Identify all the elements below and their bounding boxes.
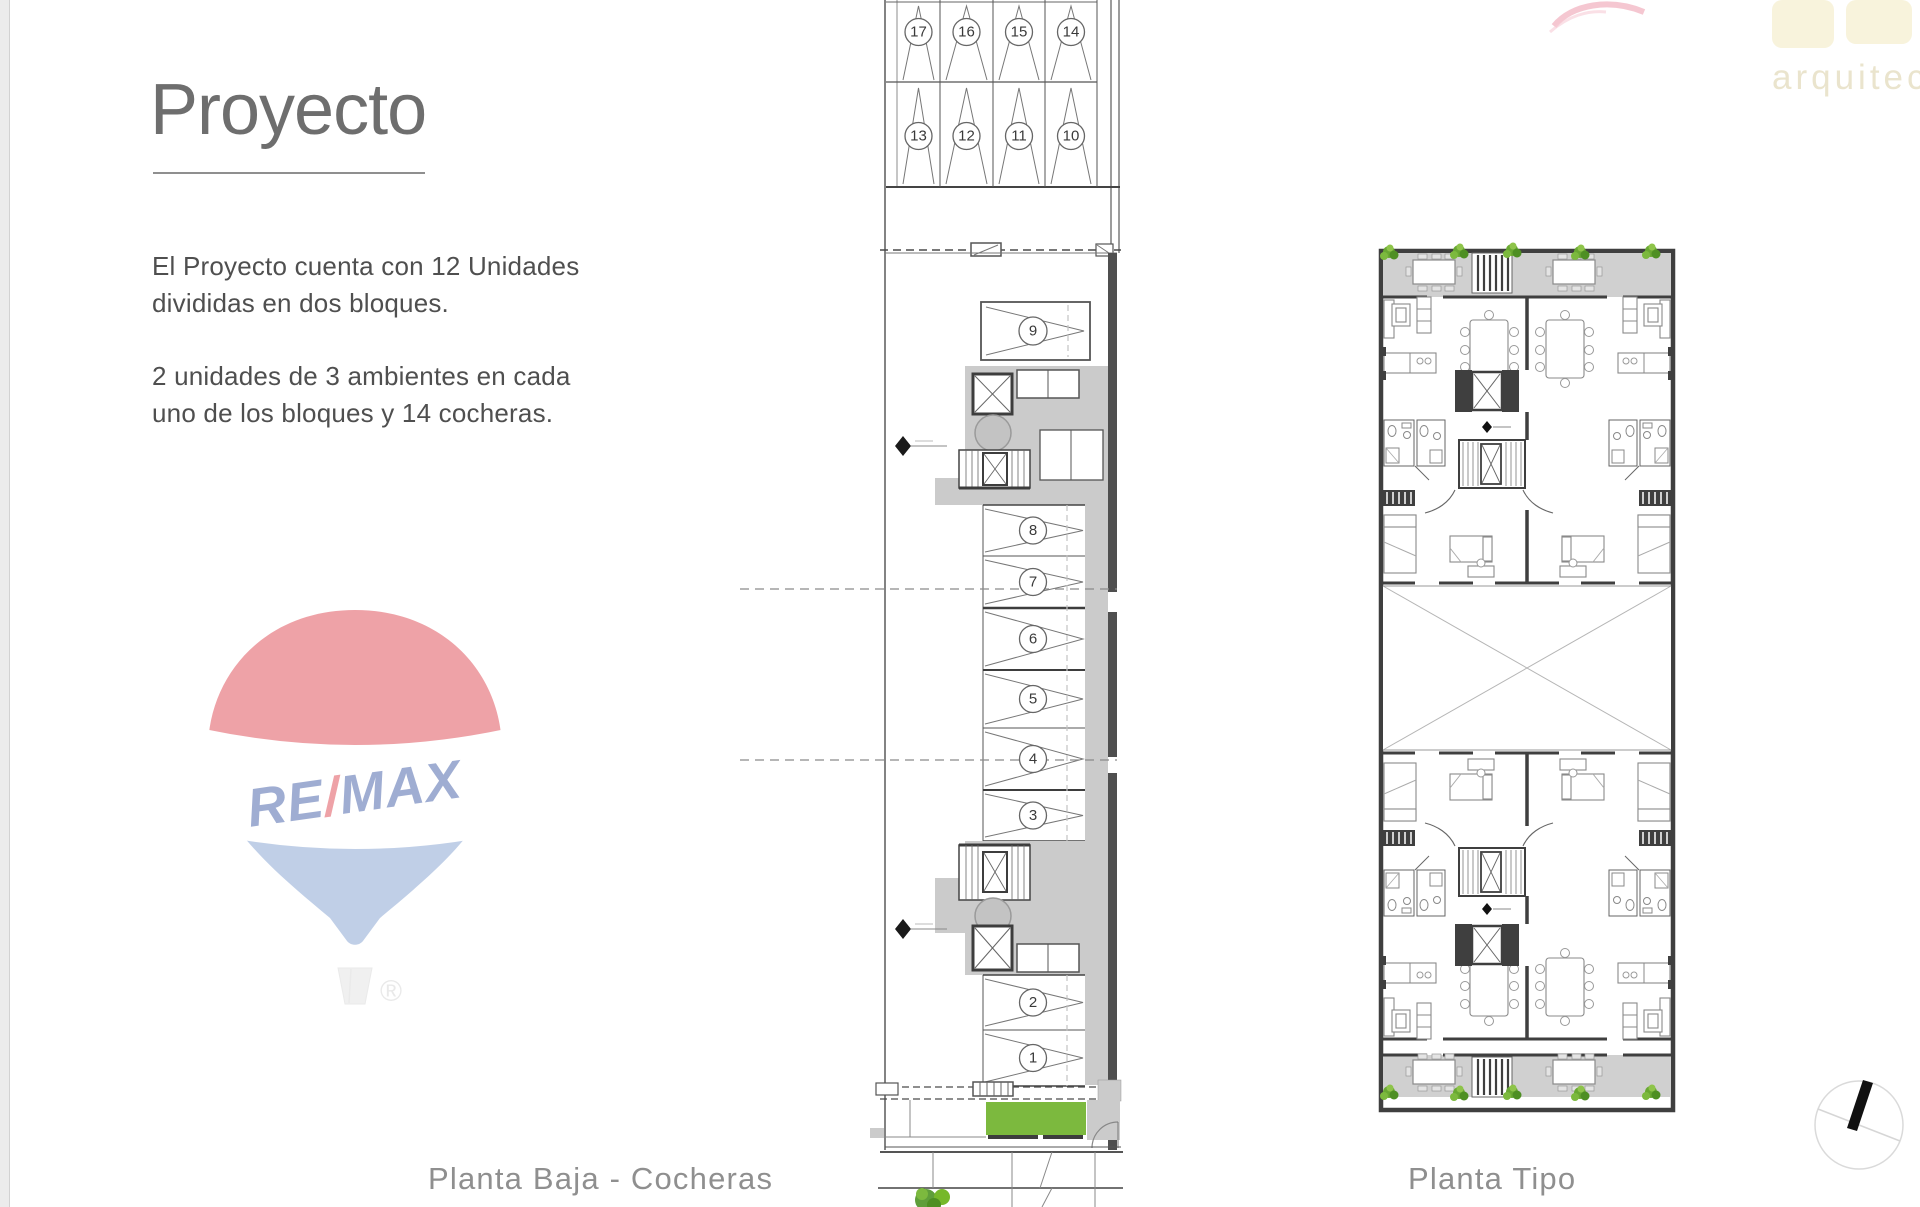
project-description-2: 2 unidades de 3 ambientes en cada uno de… xyxy=(152,358,652,432)
label-planta-tipo: Planta Tipo xyxy=(1408,1161,1576,1197)
parking-spot-number: 8 xyxy=(1029,522,1037,539)
parking-spot-number: 2 xyxy=(1029,994,1037,1011)
parking-spot-number: 6 xyxy=(1029,631,1037,648)
parking-spot-number: 13 xyxy=(910,128,927,145)
project-slide: { "left_panel": { "title": "Proyecto", "… xyxy=(0,0,1920,1207)
planta-baja-floorplan: 17 16 15 14 13 12 11 10 xyxy=(740,0,1140,1207)
street-frontage xyxy=(870,1080,1123,1207)
watermark-swoosh xyxy=(1548,0,1658,40)
upper-parking-area: 17 16 15 14 13 12 11 10 xyxy=(886,0,1120,187)
title-underline xyxy=(153,172,425,174)
parking-spot-number: 17 xyxy=(910,24,927,41)
label-planta-baja: Planta Baja - Cocheras xyxy=(428,1161,773,1197)
architect-logo-glyph xyxy=(1846,0,1912,44)
parking-spot-number: 15 xyxy=(1011,24,1028,41)
parking-spot-number: 3 xyxy=(1029,807,1037,824)
parking-spot-number: 12 xyxy=(958,128,975,145)
parking-spot-number: 1 xyxy=(1029,1050,1037,1067)
parking-spot-number: 5 xyxy=(1029,691,1037,708)
garden-planter xyxy=(986,1102,1086,1135)
north-needle xyxy=(1847,1080,1873,1131)
parking-spot-number: 4 xyxy=(1029,751,1037,768)
stair-elevator-core-upper xyxy=(935,366,1108,505)
architect-watermark-text: arquitec xyxy=(1772,58,1920,97)
stair-elevator-core-lower xyxy=(935,841,1108,975)
parking-spot-number: 7 xyxy=(1029,574,1037,591)
right-wall xyxy=(1108,253,1117,1150)
remax-balloon-logo: RE/MAX ® xyxy=(200,600,510,1030)
registered-trademark-symbol: ® xyxy=(380,975,402,1008)
street-tree xyxy=(915,1188,950,1207)
property-line xyxy=(880,243,1121,256)
level-marker-upper xyxy=(895,436,947,456)
parking-spot-number: 14 xyxy=(1063,24,1080,41)
architect-logo-glyph xyxy=(1772,0,1834,48)
page-title: Proyecto xyxy=(150,74,426,146)
architect-logo-watermark: arquitec xyxy=(1772,0,1920,110)
balloon-basket xyxy=(338,968,372,1004)
plan-walls xyxy=(885,0,1119,1150)
parking-spot-number: 16 xyxy=(958,24,975,41)
planta-tipo-floorplan xyxy=(1375,240,1680,1125)
window-edge-strip xyxy=(0,0,10,1207)
parking-spot-number: 11 xyxy=(1011,128,1027,145)
parking-spot-number: 10 xyxy=(1063,128,1080,145)
central-courtyard xyxy=(1383,586,1671,750)
parking-spot-number: 9 xyxy=(1029,323,1037,340)
north-arrow-compass xyxy=(1812,1078,1912,1207)
project-description-1: El Proyecto cuenta con 12 Unidades divid… xyxy=(152,248,652,322)
